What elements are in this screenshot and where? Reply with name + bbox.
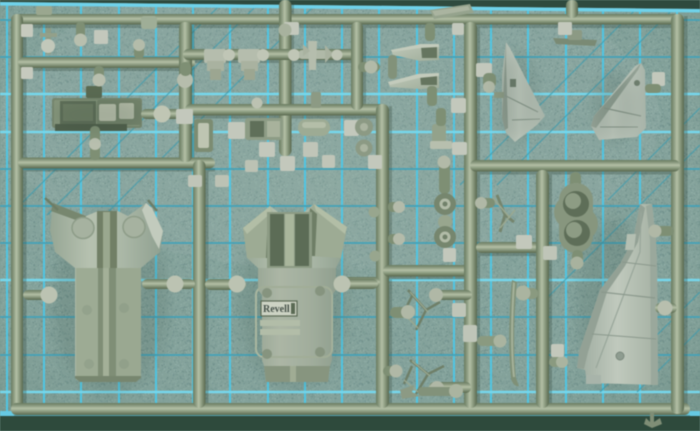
svg-text:Revell: Revell <box>263 304 290 315</box>
